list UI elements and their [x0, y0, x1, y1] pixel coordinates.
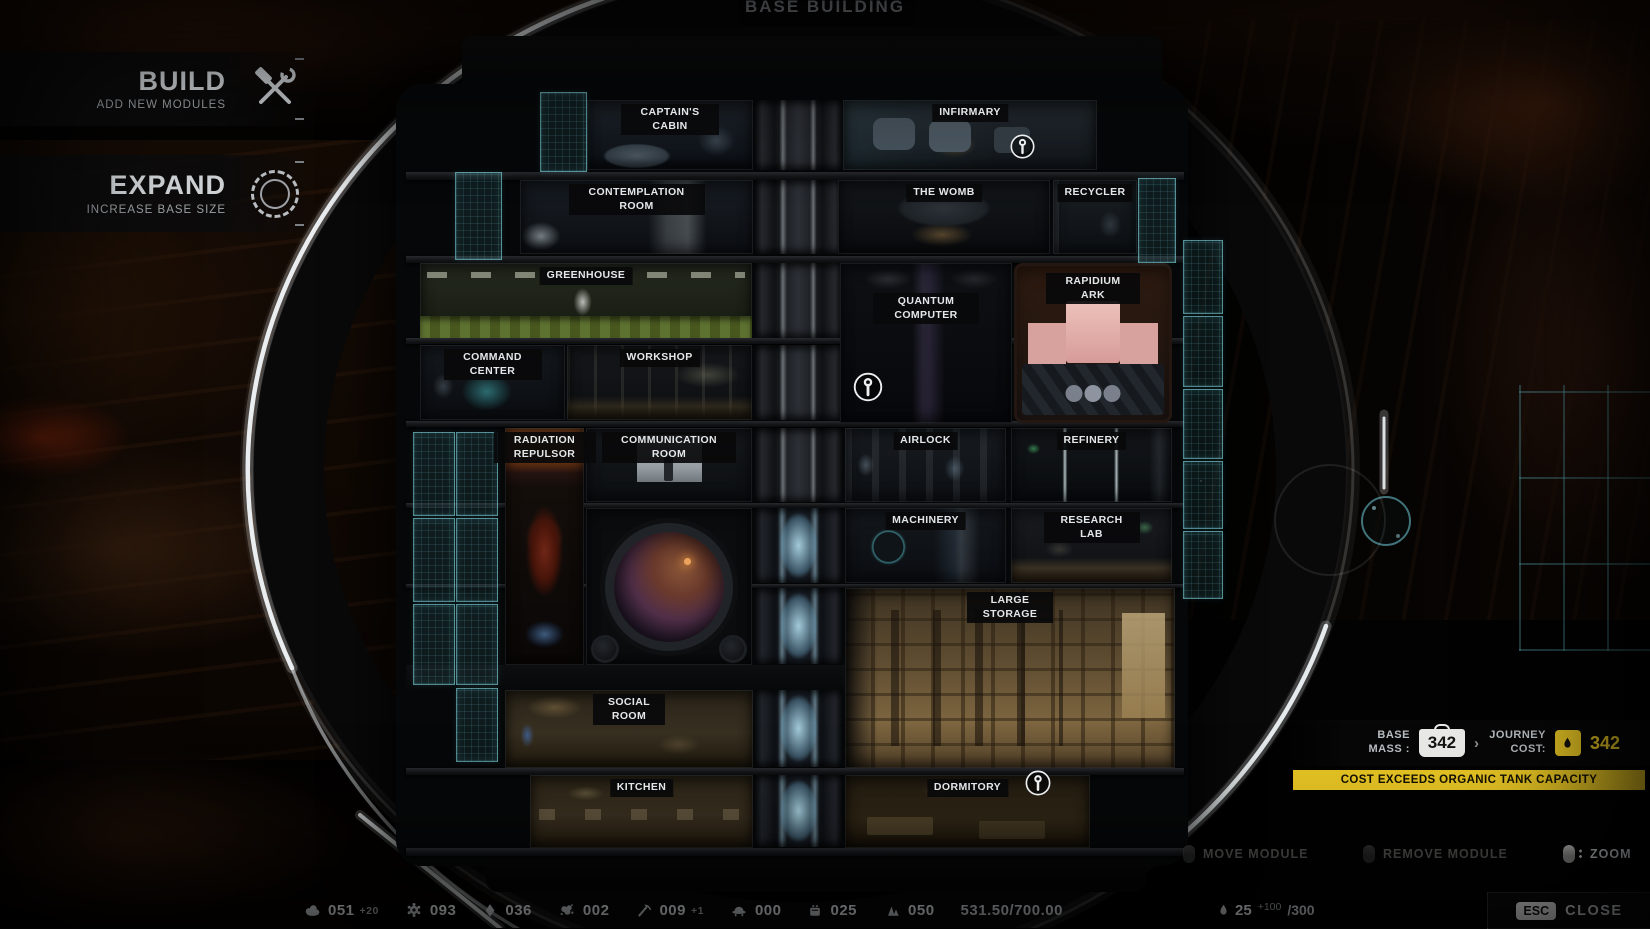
elevator-shaft-segment — [755, 180, 842, 254]
exterior-hatch — [1362, 497, 1410, 545]
build-slot[interactable] — [456, 432, 498, 516]
module-dormitory[interactable]: DORMITORY — [845, 775, 1090, 848]
module-refinery[interactable]: REFINERY — [1011, 428, 1172, 502]
crystal-icon — [482, 903, 498, 918]
expand-sublabel: INCREASE BASE SIZE — [87, 204, 226, 216]
resource-item: 000 — [730, 902, 782, 919]
module-label: COMMAND CENTER — [444, 349, 542, 380]
module-contemplation-room[interactable]: CONTEMPLATION ROOM — [520, 180, 753, 254]
base-mass-label: BASE MASS : — [1360, 729, 1410, 757]
module-radiation-repulsor[interactable]: RADIATION REPULSOR — [505, 428, 584, 665]
elevator-shaft-segment — [755, 428, 842, 502]
resource-value: 000 — [755, 902, 782, 919]
expand-button-text: EXPAND INCREASE BASE SIZE — [0, 171, 242, 216]
module-the-womb[interactable]: THE WOMB — [838, 180, 1050, 254]
journey-cost-value: 342 — [1590, 733, 1620, 754]
module-social-room[interactable]: SOCIAL ROOM — [505, 690, 753, 768]
rations-icon — [807, 903, 823, 918]
vent-icon — [722, 638, 744, 660]
build-button-text: BUILD ADD NEW MODULES — [0, 67, 242, 112]
module-greenhouse[interactable]: GREENHOUSE — [420, 263, 752, 338]
resource-item: 050 — [883, 902, 935, 919]
organic-tank-value: 25 — [1235, 902, 1252, 919]
wrench-badge — [1024, 769, 1052, 802]
module-label: QUANTUM COMPUTER — [873, 293, 979, 324]
close-label: CLOSE — [1565, 903, 1622, 919]
mouse-left-icon — [1183, 845, 1195, 863]
elevator-shaft-segment — [755, 775, 842, 847]
module-rapidium-ark[interactable]: RAPIDIUM ARK — [1014, 263, 1172, 423]
pickaxe-icon — [635, 902, 652, 918]
dome-icon — [730, 903, 748, 918]
esc-key-badge: ESC — [1516, 902, 1556, 920]
hint-move-label: MOVE MODULE — [1203, 847, 1308, 861]
build-slot[interactable] — [413, 518, 455, 602]
resource-item: 025 — [807, 902, 857, 919]
build-slot[interactable] — [1138, 178, 1176, 263]
elevator-shaft-segment — [755, 588, 842, 664]
elevator-shaft-segment — [755, 690, 842, 767]
module-kitchen[interactable]: KITCHEN — [530, 775, 753, 848]
mouse-right-icon — [1363, 845, 1375, 863]
module-label: CONTEMPLATION ROOM — [569, 184, 705, 215]
deck-floor — [406, 848, 1184, 856]
module-core-porthole — [586, 508, 752, 665]
module-label: KITCHEN — [610, 779, 673, 797]
hint-move-module: MOVE MODULE — [1183, 845, 1308, 863]
module-label: RECYCLER — [1058, 184, 1133, 202]
module-airlock[interactable]: AIRLOCK — [845, 428, 1006, 502]
build-slot[interactable] — [456, 604, 498, 685]
organic-tank-readout: 25 +100 /300 — [1218, 893, 1315, 927]
module-label: GREENHOUSE — [540, 267, 633, 285]
fuel-drop-icon — [1555, 730, 1581, 756]
module-workshop[interactable]: WORKSHOP — [567, 345, 752, 420]
resource-value: 025 — [830, 902, 857, 919]
elevator-shaft-segment — [755, 263, 842, 338]
hull-top-machinery — [462, 36, 1162, 90]
arrow-icon: › — [1474, 735, 1479, 752]
wrench-badge — [852, 371, 884, 408]
module-label: MACHINERY — [885, 512, 966, 530]
drop-icon — [1218, 903, 1229, 918]
module-label: RESEARCH LAB — [1044, 512, 1140, 543]
module-label: AIRLOCK — [893, 432, 958, 450]
organic-tank-bonus: +100 — [1258, 901, 1282, 913]
mouse-wheel-icon — [1563, 845, 1575, 863]
build-slot[interactable] — [456, 688, 498, 762]
decor-dots — [1085, 385, 1102, 402]
resource-value: 051 — [328, 902, 355, 919]
expansion-grid-panel — [1519, 385, 1650, 651]
module-communication-room[interactable]: COMMUNICATION ROOM — [586, 428, 752, 502]
journey-cost-label: JOURNEY COST: — [1488, 729, 1546, 757]
build-slot[interactable] — [456, 518, 498, 602]
vent-icon — [594, 638, 616, 660]
organics-icon — [558, 902, 576, 918]
resource-item: 009+1 — [635, 902, 704, 919]
porthole-window — [605, 523, 733, 651]
module-label: DORMITORY — [927, 779, 1008, 797]
module-large-storage[interactable]: LARGE STORAGE — [845, 588, 1175, 768]
resource-item: 036 — [482, 902, 532, 919]
module-label: COMMUNICATION ROOM — [602, 432, 736, 463]
resource-value: 002 — [583, 902, 610, 919]
hint-remove-module: REMOVE MODULE — [1363, 845, 1508, 863]
resource-value: 009 — [659, 902, 686, 919]
resource-bar: 051+20093036002009+1000025050 531.50/700… — [303, 893, 1131, 927]
elevator-shaft-segment — [755, 508, 842, 583]
build-slot[interactable] — [1183, 240, 1223, 314]
wheel-dots-icon — [1579, 849, 1582, 859]
resource-value: 093 — [430, 902, 457, 919]
build-slot[interactable] — [1183, 316, 1223, 387]
build-slot[interactable] — [1183, 531, 1223, 599]
deck-floor — [406, 768, 1184, 775]
build-slot[interactable] — [540, 92, 587, 172]
storage-capacity: 531.50/700.00 — [961, 902, 1063, 919]
module-label: CAPTAIN'S CABIN — [621, 104, 719, 135]
module-captains-cabin[interactable]: CAPTAIN'S CABIN — [587, 100, 753, 170]
build-slot[interactable] — [413, 432, 455, 516]
organic-tank-capacity: /300 — [1287, 902, 1314, 918]
hammer-wrench-icon — [242, 66, 308, 112]
module-infirmary[interactable]: INFIRMARY — [843, 100, 1097, 170]
segmented-ring-icon — [242, 170, 308, 218]
gear-icon — [405, 902, 423, 918]
metal-scraps-icon — [303, 902, 321, 918]
hint-zoom-label: ZOOM — [1590, 847, 1632, 861]
resource-value: 050 — [908, 902, 935, 919]
hint-remove-label: REMOVE MODULE — [1383, 847, 1508, 861]
module-recycler[interactable]: RECYCLER — [1053, 180, 1137, 254]
module-label: LARGE STORAGE — [967, 592, 1053, 623]
wrench-badge — [1009, 133, 1036, 165]
deck-floor — [406, 172, 1184, 180]
resource-item: 002 — [558, 902, 610, 919]
module-label: SOCIAL ROOM — [593, 694, 665, 725]
room-art — [505, 428, 584, 665]
hint-zoom: ZOOM — [1563, 845, 1632, 863]
page-title: BASE BUILDING — [0, 0, 1650, 17]
elevator-shaft-segment — [755, 100, 842, 170]
resource-item: 093 — [405, 902, 457, 919]
build-slot[interactable] — [413, 604, 455, 685]
warning-banner: COST EXCEEDS ORGANIC TANK CAPACITY — [1293, 770, 1645, 790]
elevator-shaft-segment — [755, 345, 842, 420]
base-mass-weight-icon: 342 — [1419, 729, 1465, 757]
cave-rock-left — [0, 140, 410, 760]
resource-bonus: +20 — [360, 905, 379, 917]
module-research-lab[interactable]: RESEARCH LAB — [1011, 508, 1172, 583]
mass-panel: BASE MASS : 342 › JOURNEY COST: 342 — [1285, 720, 1650, 766]
close-button[interactable]: ESC CLOSE — [1487, 892, 1650, 929]
build-sublabel: ADD NEW MODULES — [97, 99, 226, 111]
module-label: WORKSHOP — [619, 349, 699, 367]
build-button[interactable]: BUILD ADD NEW MODULES — [0, 52, 308, 126]
module-label: THE WOMB — [906, 184, 982, 202]
module-label: RAPIDIUM ARK — [1046, 273, 1140, 304]
module-label: RADIATION REPULSOR — [494, 432, 596, 463]
resource-bonus: +1 — [691, 905, 704, 917]
deck-floor — [406, 256, 1184, 263]
resource-value: 036 — [505, 902, 532, 919]
build-slot[interactable] — [1183, 389, 1223, 459]
build-slot[interactable] — [1183, 461, 1223, 529]
minerals-icon — [883, 902, 901, 918]
module-label: INFIRMARY — [932, 104, 1008, 122]
module-label: REFINERY — [1057, 432, 1127, 450]
build-slot[interactable] — [455, 172, 502, 260]
module-command-center[interactable]: COMMAND CENTER — [420, 345, 565, 420]
module-machinery[interactable]: MACHINERY — [845, 508, 1006, 583]
expand-label: EXPAND — [109, 171, 226, 201]
resource-item: 051+20 — [303, 902, 379, 919]
build-label: BUILD — [139, 67, 227, 97]
expand-button[interactable]: EXPAND INCREASE BASE SIZE — [0, 155, 308, 232]
